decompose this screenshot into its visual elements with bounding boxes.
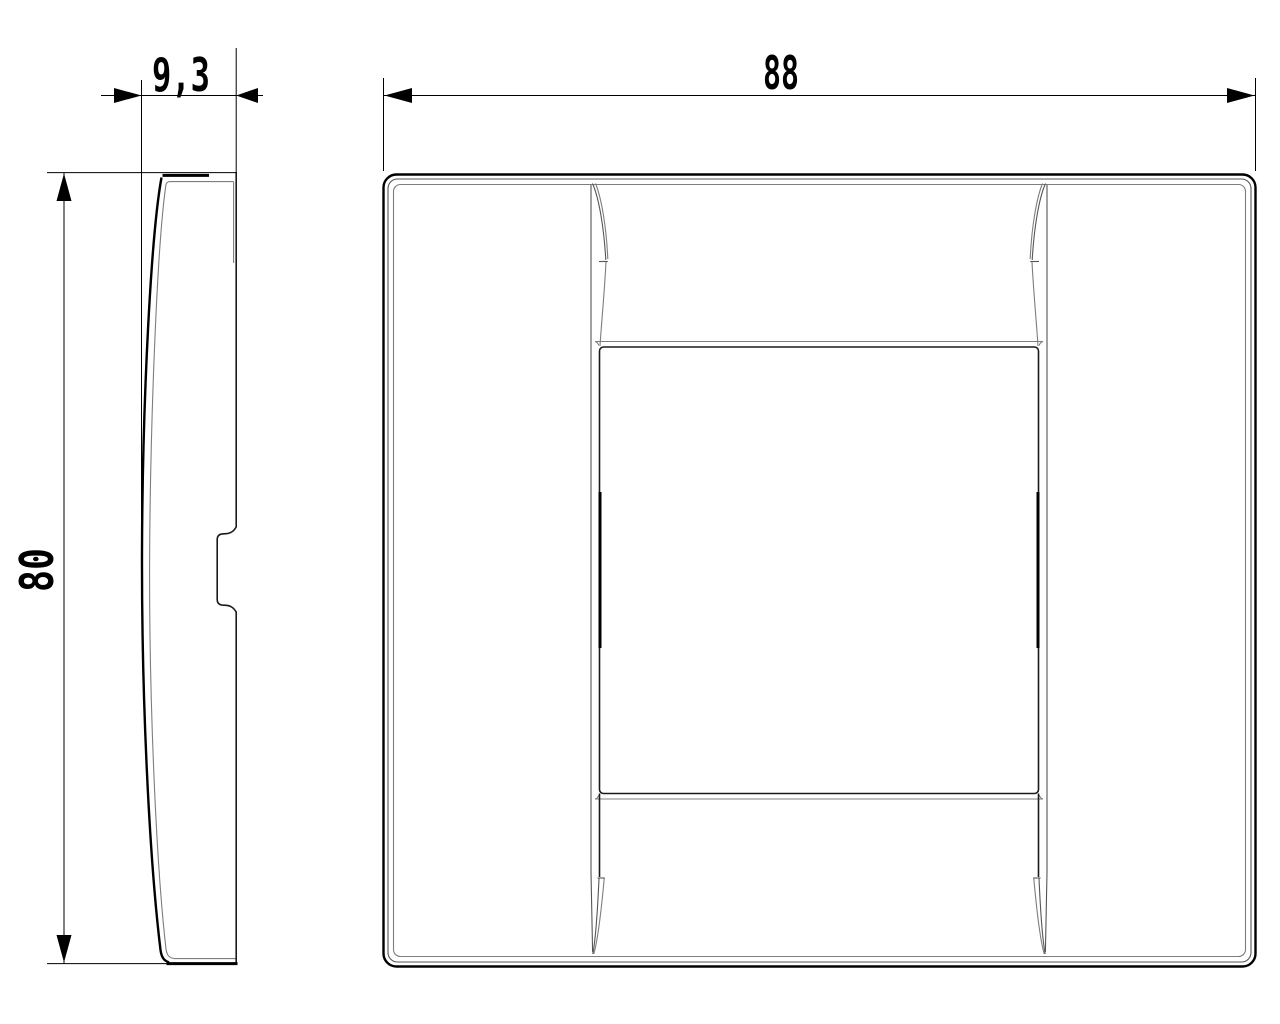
side-outer-curve [142, 178, 169, 963]
width-arrowhead-left [385, 88, 413, 103]
height-arrowhead-bottom [57, 935, 72, 963]
module-window [595, 342, 1043, 800]
dimension-height: 80 [10, 173, 237, 964]
side-inner-contour [150, 182, 237, 959]
dimension-width: 88 [384, 46, 1256, 171]
side-profile-view [142, 173, 238, 964]
window-top-offset-line [595, 342, 1043, 346]
width-dimension-label: 88 [763, 46, 799, 100]
front-outer-edge [384, 175, 1256, 967]
left-recess-fade-curve [600, 262, 606, 346]
height-dimension-label: 80 [10, 548, 64, 592]
left-recess-silhouette [591, 185, 593, 952]
depth-arrowhead-right [236, 88, 258, 103]
window-bottom-offset-line [595, 795, 1043, 799]
depth-arrowhead-left [114, 88, 142, 103]
side-back-edge-with-notch [217, 173, 236, 963]
right-recess-fade-curve [1032, 262, 1038, 346]
right-recess-silhouette [1045, 185, 1047, 952]
technical-drawing-canvas: 9,3 88 80 [0, 0, 1280, 1024]
dimension-depth: 9,3 [101, 48, 263, 520]
front-view [384, 175, 1256, 967]
front-outer-edge-inner-line [388, 179, 1251, 962]
depth-dimension-label: 9,3 [152, 48, 210, 102]
plate-dimension-drawing: 9,3 88 80 [0, 0, 1280, 1024]
front-face-boundary [394, 185, 1246, 957]
window-opening [600, 347, 1039, 794]
width-arrowhead-right [1227, 88, 1255, 103]
height-arrowhead-top [57, 174, 72, 202]
